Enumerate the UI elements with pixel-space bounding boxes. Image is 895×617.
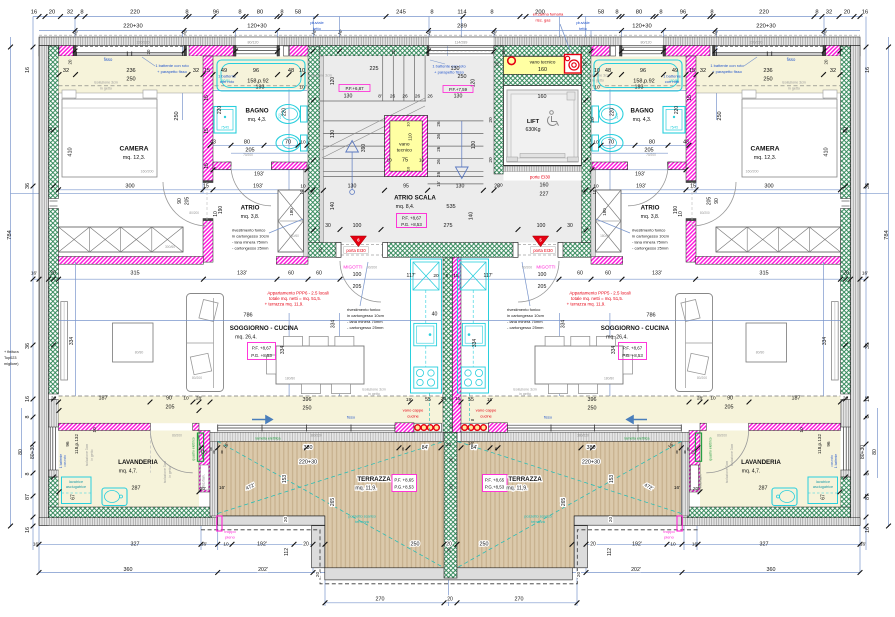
svg-text:porta EI30: porta EI30 — [346, 248, 366, 253]
svg-text:1 battente con roto: 1 battente con roto — [710, 63, 744, 68]
svg-text:16': 16' — [219, 485, 225, 491]
svg-text:in getto: in getto — [90, 449, 94, 460]
svg-text:32: 32 — [193, 68, 199, 74]
svg-text:75/45: 75/45 — [670, 126, 678, 130]
svg-text:CAMERA: CAMERA — [120, 146, 149, 153]
svg-text:160: 160 — [538, 94, 547, 100]
svg-text:287: 287 — [759, 486, 768, 492]
svg-text:100: 100 — [353, 223, 362, 229]
svg-text:vano cappe: vano cappe — [403, 408, 424, 413]
svg-text:87: 87 — [865, 494, 871, 500]
svg-text:20: 20 — [582, 189, 587, 194]
svg-text:con roto: con roto — [63, 455, 67, 467]
svg-text:pieno: pieno — [664, 535, 675, 540]
svg-text:90/200: 90/200 — [522, 266, 532, 270]
svg-text:75: 75 — [402, 158, 408, 164]
svg-text:26: 26 — [427, 94, 433, 100]
svg-text:20: 20 — [447, 547, 452, 553]
svg-text:LAVANDERIA: LAVANDERIA — [118, 459, 158, 466]
svg-text:8: 8 — [490, 10, 493, 16]
svg-text:80: 80 — [872, 449, 878, 455]
svg-text:117': 117' — [484, 273, 493, 279]
svg-text:187: 187 — [99, 396, 108, 402]
svg-text:fisc./san.: fisc./san. — [202, 474, 206, 487]
svg-text:80: 80 — [18, 449, 24, 455]
svg-text:8: 8 — [238, 10, 241, 16]
svg-text:786: 786 — [243, 313, 252, 319]
svg-text:isolazione 3cm: isolazione 3cm — [85, 444, 89, 467]
svg-text:20: 20 — [576, 572, 581, 578]
svg-text:P.F. +8,65: P.F. +8,65 — [394, 478, 414, 483]
svg-text:totale mq. netti = mq. 51,5.: totale mq. netti = mq. 51,5. — [571, 296, 623, 301]
svg-text:10: 10 — [92, 427, 98, 433]
svg-text:Appartamento PPP6 - 2.5 locali: Appartamento PPP6 - 2.5 locali — [267, 291, 328, 296]
svg-text:58: 58 — [598, 10, 604, 16]
svg-text:in getto: in getto — [100, 87, 112, 91]
svg-text:migliore): migliore) — [4, 362, 19, 366]
svg-text:- cartongesso 25mm: - cartongesso 25mm — [347, 325, 384, 330]
svg-text:pieno: pieno — [225, 535, 236, 540]
svg-text:190: 190 — [673, 206, 679, 215]
svg-text:8: 8 — [210, 447, 213, 452]
svg-text:mq. 26,4.: mq. 26,4. — [235, 335, 257, 341]
svg-text:16': 16' — [201, 542, 207, 548]
svg-text:140: 140 — [469, 212, 475, 221]
svg-text:396: 396 — [303, 397, 312, 403]
svg-text:250: 250 — [717, 111, 723, 120]
svg-text:786: 786 — [646, 313, 655, 319]
svg-text:40: 40 — [432, 312, 438, 318]
svg-text:236: 236 — [763, 68, 772, 74]
svg-text:28': 28' — [697, 396, 703, 402]
svg-text:P.G.+8,53: P.G.+8,53 — [394, 485, 414, 490]
svg-text:300: 300 — [125, 184, 134, 190]
svg-text:- lana minera 75mm: - lana minera 75mm — [232, 240, 268, 245]
svg-text:784: 784 — [7, 229, 13, 239]
svg-text:10: 10 — [593, 184, 599, 190]
svg-text:10: 10 — [710, 396, 716, 402]
svg-text:250: 250 — [126, 76, 135, 82]
svg-text:10: 10 — [594, 85, 600, 91]
svg-text:8: 8 — [615, 10, 618, 16]
svg-text:20: 20 — [433, 273, 439, 279]
svg-text:isolazione 3cm: isolazione 3cm — [730, 444, 734, 467]
svg-text:202': 202' — [631, 567, 641, 573]
svg-text:16': 16' — [674, 485, 680, 491]
svg-text:205: 205 — [353, 284, 362, 290]
svg-text:26: 26 — [415, 94, 421, 100]
svg-text:360: 360 — [767, 567, 776, 573]
svg-text:180/80: 180/80 — [285, 377, 295, 381]
svg-text:15: 15 — [453, 273, 459, 279]
svg-text:250: 250 — [763, 76, 772, 82]
svg-text:117': 117' — [407, 273, 416, 279]
svg-text:isolazione 3cm: isolazione 3cm — [586, 74, 610, 78]
svg-text:90: 90 — [714, 198, 720, 204]
svg-text:84': 84' — [422, 445, 429, 451]
svg-text:160/200: 160/200 — [141, 170, 154, 174]
svg-text:193: 193 — [256, 85, 265, 91]
svg-text:130: 130 — [344, 94, 353, 100]
svg-text:P.F. +8,67: P.F. +8,67 — [402, 216, 422, 221]
svg-text:1 battente con roto: 1 battente con roto — [432, 64, 466, 69]
svg-text:227: 227 — [540, 192, 549, 198]
svg-text:28': 28' — [196, 396, 202, 402]
svg-text:rivestimento fonico: rivestimento fonico — [232, 228, 266, 233]
svg-text:300: 300 — [764, 184, 773, 190]
svg-text:15: 15 — [204, 163, 210, 169]
svg-text:P.F.+6,87: P.F.+6,87 — [345, 86, 364, 91]
svg-text:193': 193' — [253, 184, 263, 190]
svg-text:327: 327 — [760, 542, 769, 548]
svg-text:fisso: fisso — [347, 415, 356, 420]
svg-text:- lana minera 75mm: - lana minera 75mm — [347, 319, 383, 324]
svg-text:in cartongesso 10cm: in cartongesso 10cm — [232, 234, 270, 239]
svg-text:80/200: 80/200 — [717, 434, 727, 438]
svg-text:fisso: fisso — [787, 57, 796, 62]
svg-text:isolazione 3cm: isolazione 3cm — [94, 80, 118, 84]
svg-text:20: 20 — [446, 542, 452, 548]
svg-text:245: 245 — [396, 10, 406, 16]
svg-text:lavatrice: lavatrice — [69, 480, 83, 484]
svg-text:202': 202' — [258, 567, 268, 573]
svg-text:vano cappe: vano cappe — [476, 408, 497, 413]
svg-text:205: 205 — [644, 148, 653, 154]
svg-text:P.F. +8,67: P.F. +8,67 — [623, 346, 643, 351]
svg-text:80/200: 80/200 — [192, 376, 202, 380]
svg-text:120: 120 — [330, 77, 336, 86]
svg-text:20: 20 — [283, 517, 288, 523]
svg-text:205: 205 — [538, 284, 547, 290]
svg-text:114: 114 — [457, 10, 467, 16]
svg-text:16': 16' — [31, 271, 37, 277]
svg-text:ATRIO: ATRIO — [641, 205, 660, 212]
svg-text:36: 36 — [25, 183, 31, 189]
svg-text:isolazione 3cm: isolazione 3cm — [308, 74, 332, 78]
svg-text:220+30: 220+30 — [756, 24, 776, 30]
svg-text:26: 26 — [436, 146, 441, 152]
svg-text:16': 16' — [862, 271, 868, 277]
svg-text:10: 10 — [799, 427, 805, 433]
svg-text:100: 100 — [537, 223, 546, 229]
svg-text:300/60: 300/60 — [165, 245, 175, 249]
svg-text:225: 225 — [370, 66, 379, 72]
svg-text:lamella elettrica: lamella elettrica — [256, 436, 281, 440]
svg-text:334: 334 — [69, 337, 75, 346]
svg-text:32: 32 — [63, 68, 69, 74]
svg-text:120+30: 120+30 — [632, 24, 652, 30]
svg-text:43: 43 — [683, 140, 689, 146]
svg-text:ATRIO SCALA: ATRIO SCALA — [394, 195, 436, 202]
svg-text:isolazione 3cm: isolazione 3cm — [163, 461, 167, 484]
svg-text:220: 220 — [615, 113, 619, 119]
svg-text:16: 16 — [865, 67, 871, 73]
svg-text:mq. 8,4.: mq. 8,4. — [396, 204, 415, 210]
svg-text:1 battente: 1 battente — [663, 74, 682, 79]
svg-text:220: 220 — [674, 106, 680, 115]
svg-text:114/289: 114/289 — [455, 41, 468, 45]
svg-text:troppo: troppo — [224, 529, 236, 534]
svg-text:P.G.+8,53: P.G.+8,53 — [485, 485, 505, 490]
svg-text:vano: vano — [399, 143, 410, 148]
svg-text:rivestimento fonico: rivestimento fonico — [632, 228, 666, 233]
svg-text:P.G. +8,53: P.G. +8,53 — [401, 222, 422, 227]
svg-text:265: 265 — [561, 498, 567, 507]
svg-text:100: 100 — [353, 272, 362, 278]
svg-text:96: 96 — [640, 68, 646, 74]
svg-text:133': 133' — [652, 271, 662, 277]
svg-text:180: 180 — [289, 208, 294, 216]
svg-text:130: 130 — [451, 66, 460, 72]
svg-text:16: 16 — [31, 10, 37, 16]
svg-text:130: 130 — [454, 94, 463, 100]
svg-text:con roto: con roto — [830, 455, 834, 467]
svg-text:20: 20 — [844, 10, 850, 16]
svg-text:15: 15 — [687, 95, 693, 101]
svg-text:TERRAZZA: TERRAZZA — [508, 476, 542, 483]
svg-text:153: 153 — [282, 475, 288, 484]
svg-text:133': 133' — [237, 271, 247, 277]
svg-text:- lana minera 75mm: - lana minera 75mm — [632, 240, 668, 245]
svg-text:10: 10 — [223, 542, 229, 548]
svg-text:130: 130 — [456, 184, 465, 190]
svg-text:80/200: 80/200 — [700, 211, 710, 215]
svg-text:80/200: 80/200 — [189, 211, 199, 215]
svg-text:8: 8 — [25, 473, 31, 476]
svg-text:80/200: 80/200 — [697, 376, 707, 380]
svg-text:55: 55 — [468, 397, 474, 403]
svg-text:BAGNO: BAGNO — [630, 108, 653, 115]
svg-text:96: 96 — [680, 10, 686, 16]
svg-text:mq. 12,3.: mq. 12,3. — [754, 155, 776, 161]
svg-text:P.F. +8,65: P.F. +8,65 — [485, 478, 505, 483]
svg-text:236: 236 — [126, 68, 135, 74]
svg-text:70/200: 70/200 — [243, 153, 253, 157]
svg-text:Appartamento PPP5 - 2.5 locali: Appartamento PPP5 - 2.5 locali — [569, 291, 630, 296]
svg-text:mq. 11,9.: mq. 11,9. — [506, 486, 527, 492]
svg-text:quadro elettrico: quadro elettrico — [709, 437, 713, 460]
svg-text:totale mq. netti = mq. 51,5.: totale mq. netti = mq. 51,5. — [269, 296, 321, 301]
svg-text:192': 192' — [632, 542, 642, 548]
svg-text:70: 70 — [608, 140, 614, 146]
svg-text:80+30: 80+30 — [30, 445, 36, 459]
svg-text:16: 16 — [865, 527, 871, 533]
svg-text:asciugatrice: asciugatrice — [66, 485, 86, 489]
svg-text:270: 270 — [376, 597, 385, 603]
svg-text:20: 20 — [447, 597, 453, 603]
svg-text:58: 58 — [295, 10, 301, 16]
svg-text:250: 250 — [480, 542, 489, 548]
svg-text:8: 8 — [659, 10, 662, 16]
svg-text:193': 193' — [636, 184, 646, 190]
svg-text:220: 220 — [282, 108, 288, 117]
svg-text:CAMERA: CAMERA — [751, 146, 780, 153]
svg-text:67: 67 — [71, 494, 77, 500]
svg-text:quadro elettrico: quadro elettrico — [192, 437, 196, 460]
svg-text:630Kg: 630Kg — [525, 127, 540, 133]
svg-text:isolazione 3cm: isolazione 3cm — [725, 461, 729, 484]
svg-text:10: 10 — [670, 542, 676, 548]
svg-text:220+30: 220+30 — [299, 460, 317, 466]
svg-text:80/120: 80/120 — [641, 41, 652, 45]
svg-text:in getto: in getto — [788, 87, 800, 91]
svg-text:mq. 4,7.: mq. 4,7. — [742, 469, 761, 475]
svg-text:205: 205 — [185, 197, 191, 206]
svg-text:in getto: in getto — [168, 466, 172, 477]
svg-text:220+30: 220+30 — [582, 460, 600, 466]
svg-text:SOGGIORNO - CUCINA: SOGGIORNO - CUCINA — [230, 325, 299, 332]
svg-text:10: 10 — [406, 166, 411, 171]
svg-text:LIFT: LIFT — [527, 119, 540, 125]
svg-text:315: 315 — [130, 271, 139, 277]
svg-text:isolazione 3cm: isolazione 3cm — [362, 388, 386, 392]
svg-text:26: 26 — [436, 159, 441, 165]
svg-text:TERRAZZA: TERRAZZA — [357, 476, 391, 483]
svg-text:26: 26 — [436, 134, 441, 140]
svg-text:10: 10 — [300, 140, 306, 146]
svg-text:BAGNO: BAGNO — [245, 108, 268, 115]
svg-text:90: 90 — [177, 198, 183, 204]
svg-text:112: 112 — [284, 548, 290, 556]
svg-text:tecnico: tecnico — [397, 148, 413, 154]
svg-text:10: 10 — [299, 189, 304, 194]
svg-text:60: 60 — [577, 271, 583, 277]
svg-text:16': 16' — [860, 542, 866, 548]
svg-text:10: 10 — [593, 140, 599, 146]
svg-text:8: 8 — [80, 10, 83, 16]
svg-text:- cartongesso 25mm: - cartongesso 25mm — [507, 325, 544, 330]
svg-text:90: 90 — [166, 396, 172, 402]
svg-text:26: 26 — [436, 171, 441, 177]
svg-text:265: 265 — [330, 498, 336, 507]
svg-text:15: 15 — [455, 396, 461, 402]
svg-text:- lana minera 75mm: - lana minera 75mm — [507, 319, 543, 324]
svg-text:8: 8 — [687, 447, 690, 452]
svg-text:+ parapetto fisso: + parapetto fisso — [712, 69, 742, 74]
svg-text:130: 130 — [348, 184, 357, 190]
svg-text:isolazione 3cm: isolazione 3cm — [513, 388, 537, 392]
svg-text:15: 15 — [204, 95, 210, 101]
svg-text:36: 36 — [865, 343, 871, 349]
svg-text:15': 15' — [436, 181, 441, 187]
svg-text:153: 153 — [609, 475, 615, 484]
svg-text:95: 95 — [403, 184, 409, 190]
svg-text:160: 160 — [540, 183, 549, 189]
svg-text:380/220: 380/220 — [310, 434, 322, 438]
svg-text:10: 10 — [592, 189, 597, 194]
svg-text:MIGOTTI: MIGOTTI — [343, 265, 362, 270]
svg-text:10: 10 — [300, 184, 306, 190]
svg-text:110: 110 — [408, 133, 414, 141]
svg-text:LAVANDERIA: LAVANDERIA — [741, 459, 781, 466]
svg-text:20': 20' — [202, 450, 208, 455]
svg-text:in cartongesso 10cm: in cartongesso 10cm — [632, 234, 670, 239]
svg-text:26: 26 — [436, 121, 441, 127]
svg-text:mq. 3,8.: mq. 3,8. — [641, 214, 660, 220]
svg-text:80: 80 — [649, 140, 655, 146]
svg-text:26: 26 — [402, 94, 408, 100]
svg-text:asciugatrice: asciugatrice — [813, 485, 833, 489]
svg-text:pluviale: pluviale — [576, 20, 590, 25]
svg-text:48: 48 — [605, 68, 611, 74]
svg-text:10: 10 — [387, 158, 393, 164]
svg-text:180: 180 — [602, 208, 607, 216]
svg-text:20: 20 — [146, 49, 151, 54]
svg-text:410: 410 — [68, 147, 74, 156]
svg-text:8: 8 — [402, 447, 405, 452]
svg-text:160: 160 — [538, 67, 547, 73]
svg-text:rivestimento fonico: rivestimento fonico — [507, 307, 541, 312]
svg-text:lavatrice: lavatrice — [816, 480, 830, 484]
svg-text:220: 220 — [217, 106, 223, 115]
svg-text:pozzetto scarico: pozzetto scarico — [348, 515, 375, 519]
svg-text:80+30: 80+30 — [860, 445, 866, 459]
svg-text:mq. 12,3.: mq. 12,3. — [123, 155, 145, 161]
svg-text:90: 90 — [727, 396, 733, 402]
svg-text:26: 26 — [390, 94, 396, 100]
svg-text:P.F. +8,67: P.F. +8,67 — [252, 346, 272, 351]
svg-text:80/200: 80/200 — [172, 434, 182, 438]
svg-text:in getto: in getto — [519, 392, 531, 396]
svg-text:15: 15 — [204, 128, 210, 134]
svg-text:SOGGIORNO - CUCINA: SOGGIORNO - CUCINA — [601, 325, 670, 332]
svg-text:Top023: Top023 — [4, 356, 16, 360]
svg-text:isolazione 3cm: isolazione 3cm — [782, 80, 806, 84]
svg-text:20: 20 — [495, 61, 500, 66]
svg-text:fisso: fisso — [104, 57, 113, 62]
svg-text:334: 334 — [561, 320, 567, 329]
svg-text:mq. 11,9.: mq. 11,9. — [355, 486, 376, 492]
svg-text:mq. 4,3.: mq. 4,3. — [248, 117, 267, 123]
svg-text:8: 8 — [430, 10, 433, 16]
svg-text:con roto: con roto — [665, 79, 680, 84]
svg-text:20: 20 — [843, 271, 849, 277]
svg-text:20': 20' — [693, 486, 699, 492]
svg-text:20: 20 — [449, 484, 455, 490]
svg-text:20: 20 — [49, 10, 55, 16]
svg-text:118,p.132: 118,p.132 — [74, 434, 79, 455]
svg-text:mq. 26,4.: mq. 26,4. — [606, 335, 628, 341]
svg-text:100: 100 — [538, 272, 547, 278]
svg-text:30: 30 — [567, 223, 573, 229]
svg-text:10: 10 — [299, 85, 305, 91]
svg-text:20: 20 — [446, 442, 452, 448]
svg-text:vano tecnico: vano tecnico — [530, 60, 556, 65]
svg-text:in cartongesso 10cm: in cartongesso 10cm — [507, 313, 545, 318]
svg-text:20: 20 — [315, 572, 320, 578]
svg-text:20: 20 — [488, 117, 494, 123]
svg-text:+ terrazza mq. 11,9.: + terrazza mq. 11,9. — [265, 302, 304, 307]
svg-text:55: 55 — [425, 397, 431, 403]
svg-text:334: 334 — [331, 320, 337, 329]
svg-text:220: 220 — [130, 10, 140, 16]
svg-text:32: 32 — [830, 68, 836, 74]
svg-text:16: 16 — [25, 527, 31, 533]
svg-text:in getto: in getto — [368, 392, 380, 396]
svg-text:- cartongesso 25mm: - cartongesso 25mm — [232, 246, 269, 251]
svg-text:140: 140 — [330, 202, 336, 211]
svg-text:19': 19' — [487, 397, 493, 403]
svg-text:20: 20 — [318, 247, 323, 253]
svg-text:30: 30 — [325, 223, 331, 229]
svg-text:20: 20 — [501, 49, 506, 54]
svg-text:20: 20 — [590, 117, 596, 123]
svg-text:87: 87 — [25, 494, 31, 500]
svg-text:porte EI30: porte EI30 — [530, 175, 551, 180]
svg-text:20: 20 — [824, 59, 829, 64]
svg-text:fisso: fisso — [544, 415, 553, 420]
svg-text:36: 36 — [25, 343, 31, 349]
